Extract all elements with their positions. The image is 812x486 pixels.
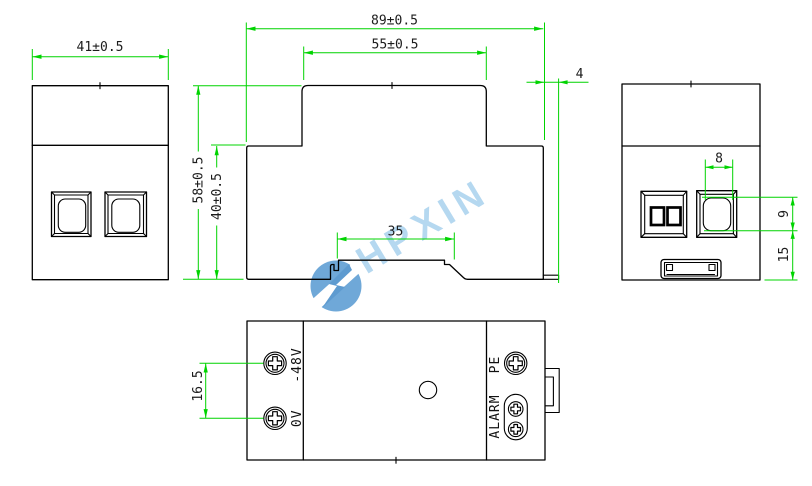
end-terminal-connector [641,191,687,237]
alarm-terminal-block [504,394,527,440]
end-bottom-offset-dim-text: 15 [777,247,792,263]
terminal-screw-pe [505,352,527,374]
technical-drawing-canvas: HPXIN [0,0,812,486]
side-clip-offset-dimension: 4 [527,67,589,283]
side-height-dimension: 58±0.5 [183,86,302,280]
end-bottom-slot [661,260,721,279]
terminal-screw-0v [264,407,286,429]
side-overall-width-dim-text: 89±0.5 [371,14,418,29]
end-body-outline [622,84,760,280]
connector-pole-2 [668,208,681,226]
button-pad [58,199,85,232]
terminal-pitch-dim-text: 16.5 [191,370,206,401]
connector-pole-1 [651,208,664,226]
button-pad [703,198,730,231]
watermark: HPXIN [306,171,496,314]
label-neg48v: -48V [290,347,305,382]
end-button-width-dimension: 8 [705,152,732,200]
side-height-dim-text: 58±0.5 [192,157,207,204]
button-pad [112,199,140,232]
side-clip-offset-dim-text: 4 [576,67,584,82]
end-button-width-dim-text: 8 [715,152,723,167]
end-view: 8 9 15 [622,81,798,280]
bottom-view: -48V 0V PE ALARM 16.5 [191,321,559,463]
label-0v: 0V [290,409,305,427]
front-push-button-right [105,192,147,237]
side-overall-width-dimension: 89±0.5 [246,14,544,143]
end-button-height-dim-text: 9 [777,210,792,218]
din-device-dimension-drawing: HPXIN [0,0,812,486]
side-top-width-dimension: 55±0.5 [304,38,487,81]
terminal-pitch-dimension: 16.5 [191,363,264,418]
mounting-hole [419,381,436,398]
side-lower-height-dim-text: 40±0.5 [210,173,225,220]
front-body-outline [32,86,168,280]
end-bottom-offset-dimension: 15 [765,231,798,280]
watermark-brand-text: HPXIN [349,171,496,282]
front-view: 41±0.5 [32,40,168,280]
side-tab-inner [545,377,553,406]
front-width-dimension: 41±0.5 [32,40,168,80]
front-push-button-left [52,192,92,237]
front-width-dim-text: 41±0.5 [77,40,124,55]
side-top-width-dim-text: 55±0.5 [372,38,419,53]
lightning-logo-icon [306,258,366,314]
end-button-height-dimension: 9 [702,197,798,230]
terminal-screw-neg48v [264,352,286,374]
din-clip-tab [543,275,558,279]
side-rail-width-dim-text: 35 [388,224,404,239]
label-pe: PE [488,356,503,374]
label-alarm: ALARM [488,394,503,438]
side-lower-height-dimension: 40±0.5 [210,145,246,279]
